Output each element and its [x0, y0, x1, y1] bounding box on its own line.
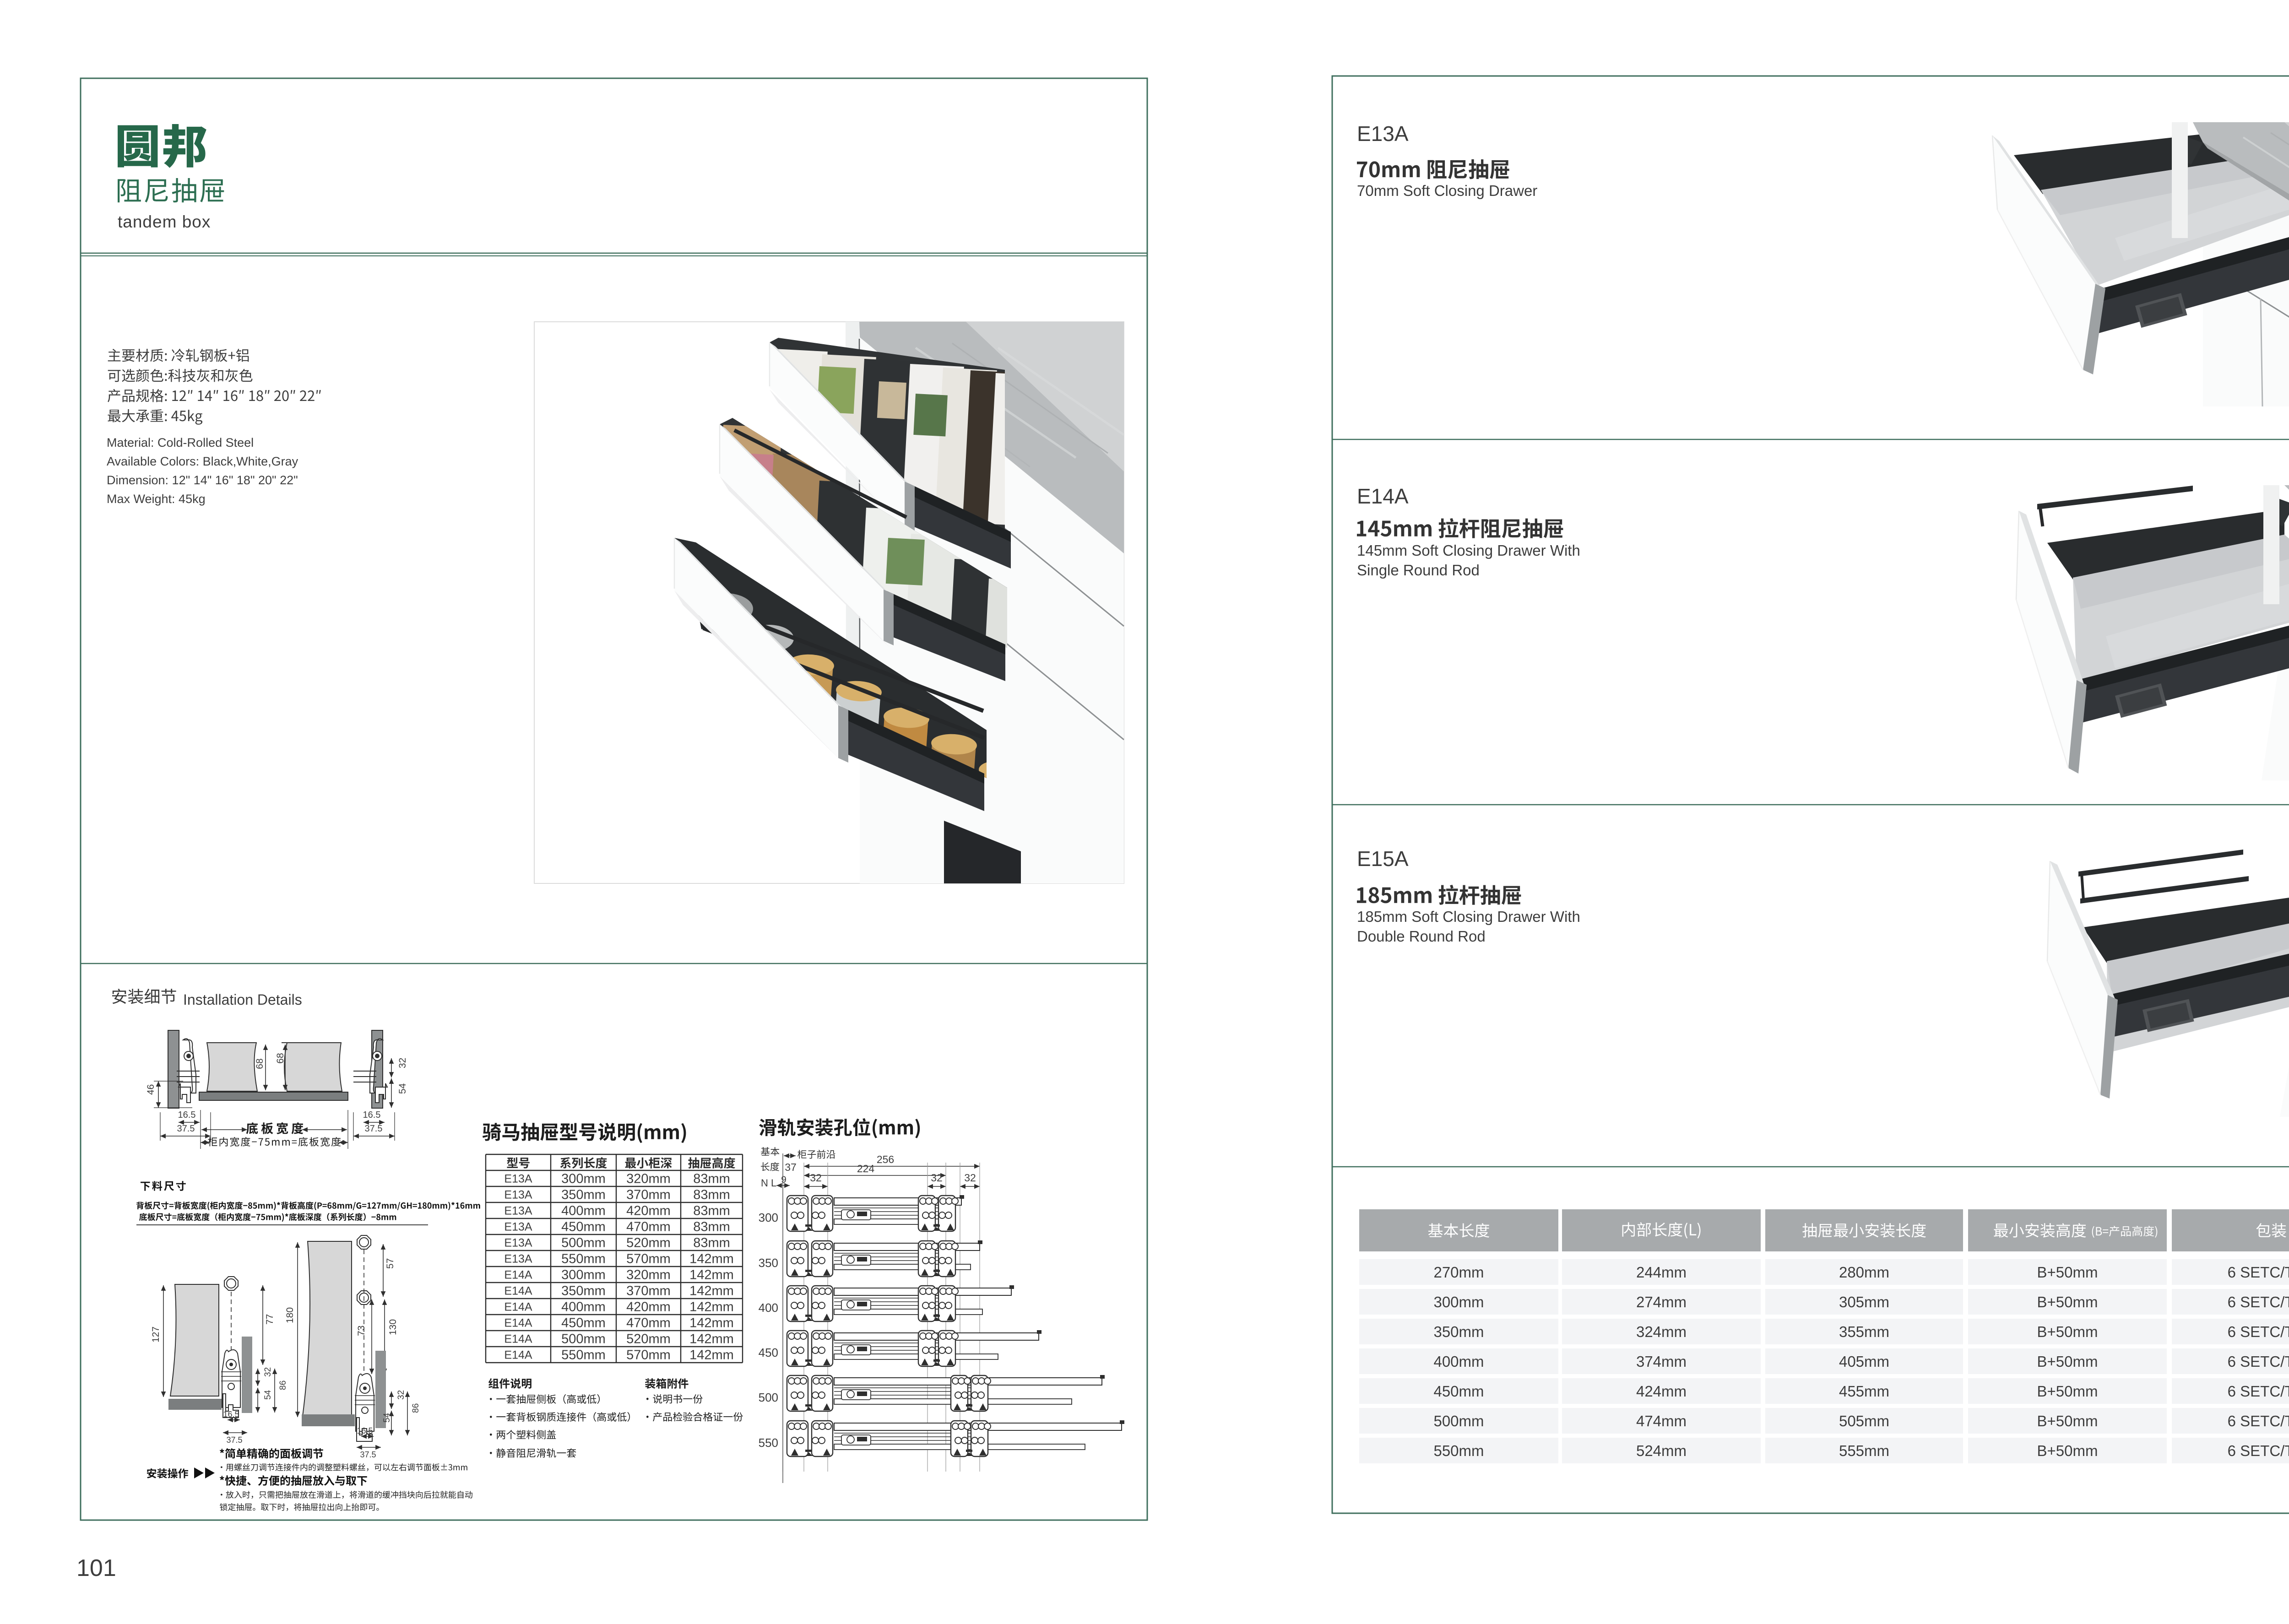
- svg-text:Installation Details: Installation Details: [183, 991, 302, 1008]
- svg-text:37.5: 37.5: [226, 1435, 242, 1445]
- svg-text:E14A: E14A: [504, 1317, 532, 1330]
- svg-text:E13A: E13A: [504, 1221, 532, 1234]
- svg-text:83mm: 83mm: [693, 1188, 730, 1202]
- svg-text:142mm: 142mm: [689, 1332, 734, 1347]
- svg-text:405mm: 405mm: [1839, 1353, 1889, 1370]
- svg-text:350mm: 350mm: [561, 1284, 606, 1299]
- svg-text:6 SETC/TNB: 6 SETC/TNB: [2228, 1442, 2289, 1459]
- svg-text:180: 180: [285, 1307, 295, 1323]
- svg-text:Max Weight: 45kg: Max Weight: 45kg: [107, 492, 206, 506]
- svg-text:320mm: 320mm: [626, 1172, 671, 1186]
- svg-text:Dimension: 12" 14" 16" 18" 20": Dimension: 12" 14" 16" 18" 20" 22": [107, 473, 298, 487]
- svg-text:6 SETC/TNB: 6 SETC/TNB: [2228, 1353, 2289, 1370]
- svg-text:16.5: 16.5: [357, 1426, 373, 1435]
- svg-text:520mm: 520mm: [626, 1236, 671, 1250]
- svg-text:470mm: 470mm: [626, 1220, 671, 1234]
- svg-text:E14A: E14A: [1357, 484, 1409, 508]
- svg-text:142mm: 142mm: [689, 1348, 734, 1363]
- svg-text:101: 101: [76, 1555, 116, 1581]
- svg-text:E15A: E15A: [1357, 847, 1409, 871]
- svg-text:37.5: 37.5: [365, 1124, 383, 1134]
- svg-text:450mm: 450mm: [561, 1316, 606, 1331]
- svg-text:16.5: 16.5: [363, 1110, 381, 1120]
- svg-text:83mm: 83mm: [693, 1236, 730, 1250]
- svg-text:32: 32: [263, 1367, 273, 1377]
- svg-text:185mm Soft Closing Drawer With: 185mm Soft Closing Drawer With: [1357, 908, 1580, 925]
- svg-text:Available Colors: Black,White,: Available Colors: Black,White,Gray: [107, 455, 298, 468]
- svg-text:70mm Soft Closing Drawer: 70mm Soft Closing Drawer: [1357, 182, 1537, 199]
- svg-text:300mm: 300mm: [561, 1268, 606, 1283]
- svg-text:37: 37: [785, 1161, 797, 1173]
- svg-text:524mm: 524mm: [1636, 1442, 1687, 1459]
- svg-text:6 SETC/TNB: 6 SETC/TNB: [2228, 1323, 2289, 1340]
- svg-text:550mm: 550mm: [1433, 1442, 1484, 1459]
- svg-text:B+50mm: B+50mm: [2037, 1383, 2098, 1400]
- svg-text:Single Round Rod: Single Round Rod: [1357, 562, 1480, 579]
- svg-text:32: 32: [396, 1390, 406, 1400]
- svg-text:B+50mm: B+50mm: [2037, 1442, 2098, 1459]
- svg-text:400mm: 400mm: [561, 1300, 606, 1315]
- svg-text:300: 300: [759, 1211, 778, 1224]
- svg-text:127: 127: [151, 1326, 161, 1343]
- svg-text:E13A: E13A: [1357, 122, 1409, 146]
- svg-text:300mm: 300mm: [561, 1172, 606, 1186]
- svg-text:400mm: 400mm: [1433, 1353, 1484, 1370]
- svg-text:550mm: 550mm: [561, 1252, 606, 1267]
- svg-text:305mm: 305mm: [1839, 1294, 1889, 1310]
- svg-text:E14A: E14A: [504, 1285, 532, 1298]
- svg-text:9: 9: [781, 1175, 787, 1185]
- svg-text:130: 130: [388, 1319, 398, 1335]
- svg-text:500mm: 500mm: [1433, 1413, 1484, 1429]
- svg-text:54: 54: [382, 1413, 392, 1423]
- svg-text:Material: Cold-Rolled Steel: Material: Cold-Rolled Steel: [107, 436, 254, 449]
- svg-text:370mm: 370mm: [626, 1188, 671, 1202]
- svg-text:E14A: E14A: [504, 1333, 532, 1346]
- svg-text:E13A: E13A: [504, 1253, 532, 1266]
- svg-text:32: 32: [397, 1058, 408, 1068]
- svg-text:142mm: 142mm: [689, 1252, 734, 1267]
- svg-text:280mm: 280mm: [1839, 1264, 1889, 1281]
- svg-text:142mm: 142mm: [689, 1268, 734, 1283]
- svg-text:83mm: 83mm: [693, 1220, 730, 1234]
- svg-text:E14A: E14A: [504, 1301, 532, 1314]
- svg-text:B+50mm: B+50mm: [2037, 1294, 2098, 1310]
- svg-text:570mm: 570mm: [626, 1252, 671, 1267]
- svg-text:224: 224: [857, 1163, 875, 1175]
- svg-text:370mm: 370mm: [626, 1284, 671, 1299]
- svg-text:400mm: 400mm: [561, 1204, 606, 1218]
- svg-text:142mm: 142mm: [689, 1300, 734, 1315]
- svg-text:86: 86: [278, 1380, 288, 1390]
- svg-text:142mm: 142mm: [689, 1316, 734, 1331]
- svg-text:350mm: 350mm: [1433, 1323, 1484, 1340]
- svg-text:6 SETC/TNB: 6 SETC/TNB: [2228, 1264, 2289, 1281]
- svg-text:270mm: 270mm: [1433, 1264, 1484, 1281]
- svg-text:450: 450: [759, 1346, 778, 1359]
- svg-text:474mm: 474mm: [1636, 1413, 1687, 1429]
- svg-text:350mm: 350mm: [561, 1188, 606, 1202]
- svg-text:400: 400: [759, 1301, 778, 1315]
- svg-text:274mm: 274mm: [1636, 1294, 1687, 1310]
- svg-text:37.5: 37.5: [177, 1124, 195, 1134]
- svg-text:550mm: 550mm: [561, 1348, 606, 1363]
- svg-text:16.5: 16.5: [223, 1410, 239, 1419]
- svg-text:E14A: E14A: [504, 1269, 532, 1282]
- svg-text:E14A: E14A: [504, 1349, 532, 1362]
- svg-text:420mm: 420mm: [626, 1204, 671, 1218]
- svg-text:B+50mm: B+50mm: [2037, 1264, 2098, 1281]
- svg-text:145mm Soft Closing Drawer With: 145mm Soft Closing Drawer With: [1357, 542, 1580, 559]
- svg-text:46: 46: [146, 1084, 156, 1095]
- svg-text:32: 32: [931, 1172, 943, 1184]
- svg-text:420mm: 420mm: [626, 1300, 671, 1315]
- svg-text:6 SETC/TNB: 6 SETC/TNB: [2228, 1294, 2289, 1310]
- svg-text:6 SETC/TNB: 6 SETC/TNB: [2228, 1383, 2289, 1400]
- svg-text:324mm: 324mm: [1636, 1323, 1687, 1340]
- svg-text:455mm: 455mm: [1839, 1383, 1889, 1400]
- svg-text:500mm: 500mm: [561, 1332, 606, 1347]
- svg-text:450mm: 450mm: [561, 1220, 606, 1234]
- svg-text:570mm: 570mm: [626, 1348, 671, 1363]
- svg-text:500mm: 500mm: [561, 1236, 606, 1250]
- svg-text:83mm: 83mm: [693, 1204, 730, 1218]
- svg-text:E13A: E13A: [504, 1237, 532, 1250]
- svg-text:244mm: 244mm: [1636, 1264, 1687, 1281]
- svg-text:32: 32: [964, 1172, 976, 1184]
- svg-text:450mm: 450mm: [1433, 1383, 1484, 1400]
- svg-text:470mm: 470mm: [626, 1316, 671, 1331]
- svg-text:37.5: 37.5: [360, 1450, 376, 1459]
- svg-text:77: 77: [265, 1314, 275, 1325]
- svg-text:57: 57: [385, 1258, 396, 1269]
- svg-text:550: 550: [759, 1436, 778, 1450]
- svg-text:500: 500: [759, 1391, 778, 1404]
- svg-text:374mm: 374mm: [1636, 1353, 1687, 1370]
- svg-text:E13A: E13A: [504, 1205, 532, 1218]
- svg-text:E13A: E13A: [504, 1189, 532, 1202]
- svg-text:54: 54: [263, 1390, 273, 1400]
- svg-text:tandem box: tandem box: [118, 212, 211, 231]
- svg-text:16.5: 16.5: [178, 1110, 196, 1120]
- svg-text:32: 32: [810, 1172, 822, 1184]
- svg-text:256: 256: [877, 1153, 894, 1165]
- svg-text:6 SETC/TNB: 6 SETC/TNB: [2228, 1413, 2289, 1429]
- svg-text:424mm: 424mm: [1636, 1383, 1687, 1400]
- svg-text:B+50mm: B+50mm: [2037, 1353, 2098, 1370]
- svg-text:555mm: 555mm: [1839, 1442, 1889, 1459]
- svg-text:68: 68: [275, 1053, 286, 1063]
- svg-text:83mm: 83mm: [693, 1172, 730, 1186]
- svg-text:Double Round Rod: Double Round Rod: [1357, 928, 1486, 945]
- svg-text:355mm: 355mm: [1839, 1323, 1889, 1340]
- svg-text:300mm: 300mm: [1433, 1294, 1484, 1310]
- svg-text:B+50mm: B+50mm: [2037, 1323, 2098, 1340]
- svg-text:320mm: 320mm: [626, 1268, 671, 1283]
- svg-text:520mm: 520mm: [626, 1332, 671, 1347]
- svg-text:505mm: 505mm: [1839, 1413, 1889, 1429]
- svg-text:142mm: 142mm: [689, 1284, 734, 1299]
- svg-text:73: 73: [356, 1326, 367, 1336]
- svg-text:E13A: E13A: [504, 1173, 532, 1186]
- svg-text:B+50mm: B+50mm: [2037, 1413, 2098, 1429]
- svg-text:54: 54: [397, 1083, 408, 1094]
- svg-text:350: 350: [759, 1256, 778, 1270]
- svg-text:68: 68: [255, 1058, 265, 1069]
- svg-text:86: 86: [411, 1403, 421, 1413]
- svg-text:N L: N L: [761, 1177, 776, 1189]
